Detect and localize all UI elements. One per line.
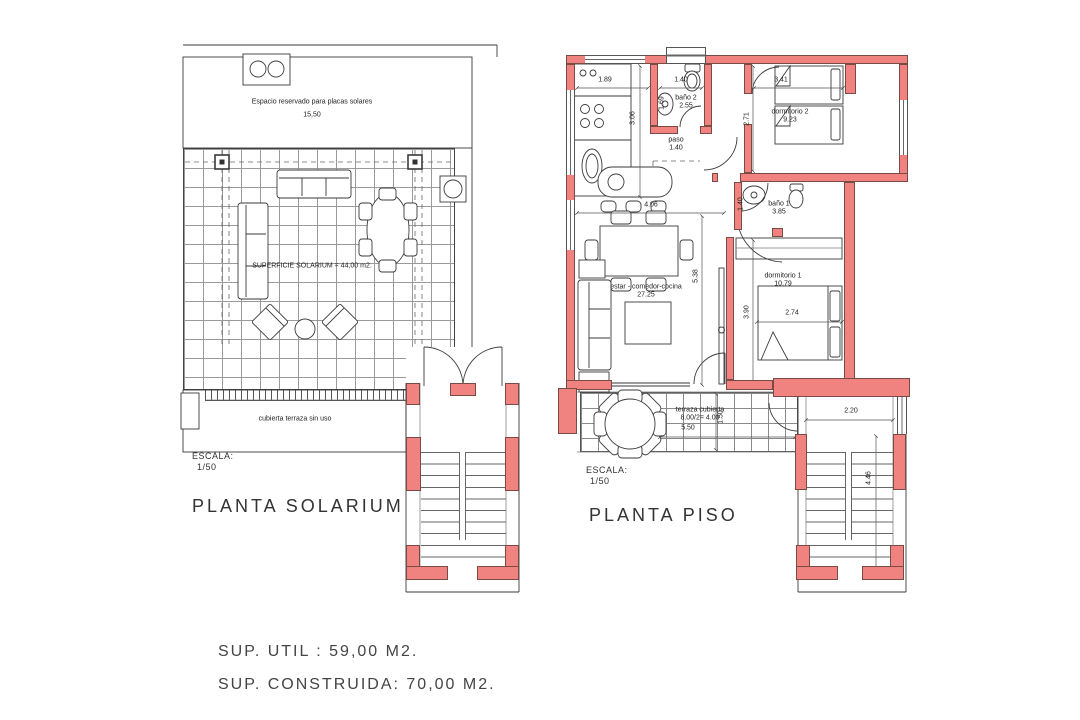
scale-label: ESCALA: bbox=[586, 466, 628, 476]
window bbox=[566, 200, 575, 250]
wall-segment bbox=[740, 173, 908, 182]
dim-terraza-alto: 1.50 bbox=[718, 410, 725, 424]
footer-sup-util: SUP. UTIL : 59,00 M2. bbox=[218, 643, 418, 661]
footer-sup-construida: SUP. CONSTRUIDA: 70,00 M2. bbox=[218, 676, 496, 694]
wall-segment bbox=[406, 566, 448, 580]
dim-dorm2-alto: 2.71 bbox=[744, 112, 751, 126]
piso-terraza bbox=[594, 390, 797, 458]
wall-segment bbox=[726, 380, 773, 390]
wall-segment bbox=[650, 64, 658, 126]
solar-reserved-note: Espacio reservado para placas solares bbox=[252, 99, 373, 106]
dim-escalera-ancho: 2.20 bbox=[844, 408, 858, 415]
wall-segment bbox=[862, 566, 904, 580]
solarium-surface-label: SUPERFICIE SOLARIUM = 44,00 m2. bbox=[252, 263, 372, 270]
piso-bedroom2 bbox=[752, 66, 843, 144]
window bbox=[666, 47, 706, 64]
wall-segment bbox=[650, 126, 678, 134]
dim-estar-alto: 5.38 bbox=[693, 269, 700, 283]
plan-linework bbox=[0, 0, 1080, 720]
wall-segment bbox=[712, 173, 718, 182]
room-area-bano2: 2.55 bbox=[679, 103, 693, 110]
wall-segment bbox=[796, 566, 838, 580]
room-area-bano1: 3.85 bbox=[772, 209, 786, 216]
wall-segment bbox=[704, 64, 712, 126]
terrace-note: cubierta terraza sin uso bbox=[259, 416, 332, 423]
stair-rail bbox=[845, 452, 852, 540]
dim-cocina-alto: 3.06 bbox=[630, 111, 637, 125]
room-area-dormitorio1: 10.79 bbox=[774, 281, 792, 288]
room-label-dormitorio1: dormitorio 1 bbox=[765, 273, 802, 280]
solar-reserved-dim: 15,50 bbox=[303, 112, 321, 119]
wall-segment bbox=[477, 566, 519, 580]
window bbox=[897, 397, 907, 434]
scale-value: 1/50 bbox=[197, 463, 217, 473]
wall-segment bbox=[450, 383, 476, 396]
scale-value: 1/50 bbox=[590, 477, 610, 487]
dim-escalera-alto: 4.46 bbox=[866, 471, 873, 485]
wall-segment bbox=[505, 437, 519, 491]
plan-title-solarium: PLANTA SOLARIUM bbox=[192, 496, 404, 517]
room-area-terraza: 8.00/2= 4.00 bbox=[680, 415, 719, 422]
window bbox=[566, 90, 575, 175]
room-label-dormitorio2: dormitorio 2 bbox=[772, 109, 809, 116]
room-label-bano1: baño 1 bbox=[768, 201, 789, 208]
wall-segment bbox=[558, 388, 577, 434]
plan-title-piso: PLANTA PISO bbox=[589, 505, 738, 526]
room-area-dormitorio2: 9.23 bbox=[783, 117, 797, 124]
dim-cocina-ancho: 1.89 bbox=[598, 77, 612, 84]
dim-dorm2-ancho: 3.41 bbox=[774, 77, 788, 84]
dim-bano2-ancho: 1.40 bbox=[674, 77, 688, 84]
wall-segment bbox=[772, 228, 783, 237]
piso-bedroom1 bbox=[719, 216, 843, 384]
wall-segment bbox=[844, 182, 855, 382]
room-label-estar: estar - comedor-cocina bbox=[610, 284, 682, 291]
floor-plan-sheet: Espacio reservado para placas solares 15… bbox=[0, 0, 1080, 720]
dim-estar-ancho: 4.06 bbox=[644, 202, 658, 209]
dim-terraza-ancho: 5.50 bbox=[681, 425, 695, 432]
window bbox=[899, 100, 908, 155]
window bbox=[585, 55, 645, 64]
dim-bano2-alto: 1.69 bbox=[659, 96, 666, 110]
wall-segment bbox=[406, 437, 421, 491]
room-label-bano2: baño 2 bbox=[675, 95, 696, 102]
wall-segment bbox=[726, 237, 734, 380]
dim-dorm1-alto: 3.90 bbox=[744, 305, 751, 319]
room-area-paso: 1.40 bbox=[669, 145, 683, 152]
wall-segment bbox=[773, 378, 910, 397]
room-area-estar: 27.25 bbox=[637, 292, 655, 299]
wall-segment bbox=[845, 64, 856, 94]
wall-segment bbox=[505, 383, 519, 405]
wall-segment bbox=[744, 124, 752, 173]
wall-segment bbox=[700, 126, 712, 134]
room-label-paso: paso bbox=[668, 137, 683, 144]
scale-label: ESCALA: bbox=[192, 452, 234, 462]
dim-bano1-alto: 1.40 bbox=[738, 197, 745, 211]
wall-segment bbox=[795, 434, 807, 490]
dim-cama-ancho: 2.74 bbox=[785, 310, 799, 317]
wall-segment bbox=[744, 64, 752, 94]
stair-rail bbox=[459, 452, 466, 540]
solarium-furniture bbox=[238, 170, 466, 340]
wall-segment bbox=[893, 434, 906, 490]
wall-segment bbox=[406, 383, 420, 405]
